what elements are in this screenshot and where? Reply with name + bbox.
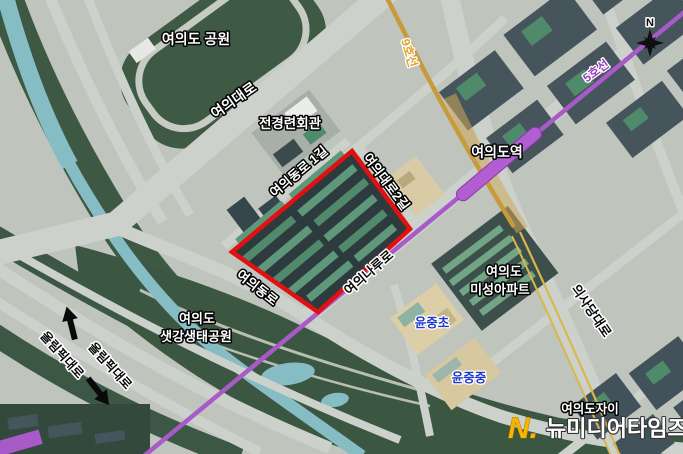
label-fki: 전경련회관 <box>259 115 322 131</box>
watermark-logo-icon: N. <box>508 412 538 445</box>
label-yunjung-elementary: 윤중초 <box>415 315 450 330</box>
satellite-map: 여의도 공원 여의대로 전경련회관 여의동로 1길 여의대로2길 9호선 5호선… <box>0 0 683 454</box>
label-yeouido-xi: 여의도자이 <box>561 401 619 416</box>
map-canvas: 여의도 공원 여의대로 전경련회관 여의동로 1길 여의대로2길 9호선 5호선… <box>0 0 683 454</box>
label-misung-2: 미성아파트 <box>470 282 530 297</box>
label-yunjung-middle: 윤중중 <box>452 370 487 385</box>
label-yeouido-park: 여의도 공원 <box>162 31 230 47</box>
label-saetgang-1: 여의도 <box>179 311 215 326</box>
label-misung-1: 여의도 <box>486 264 522 279</box>
watermark-name: 뉴미디어타임즈 <box>546 416 683 441</box>
label-yeouido-station: 여의도역 <box>471 144 523 160</box>
label-saetgang-2: 샛강생태공원 <box>160 329 232 344</box>
compass-north-label: N <box>646 17 654 29</box>
watermark: N. 뉴미디어타임즈 <box>508 412 683 445</box>
